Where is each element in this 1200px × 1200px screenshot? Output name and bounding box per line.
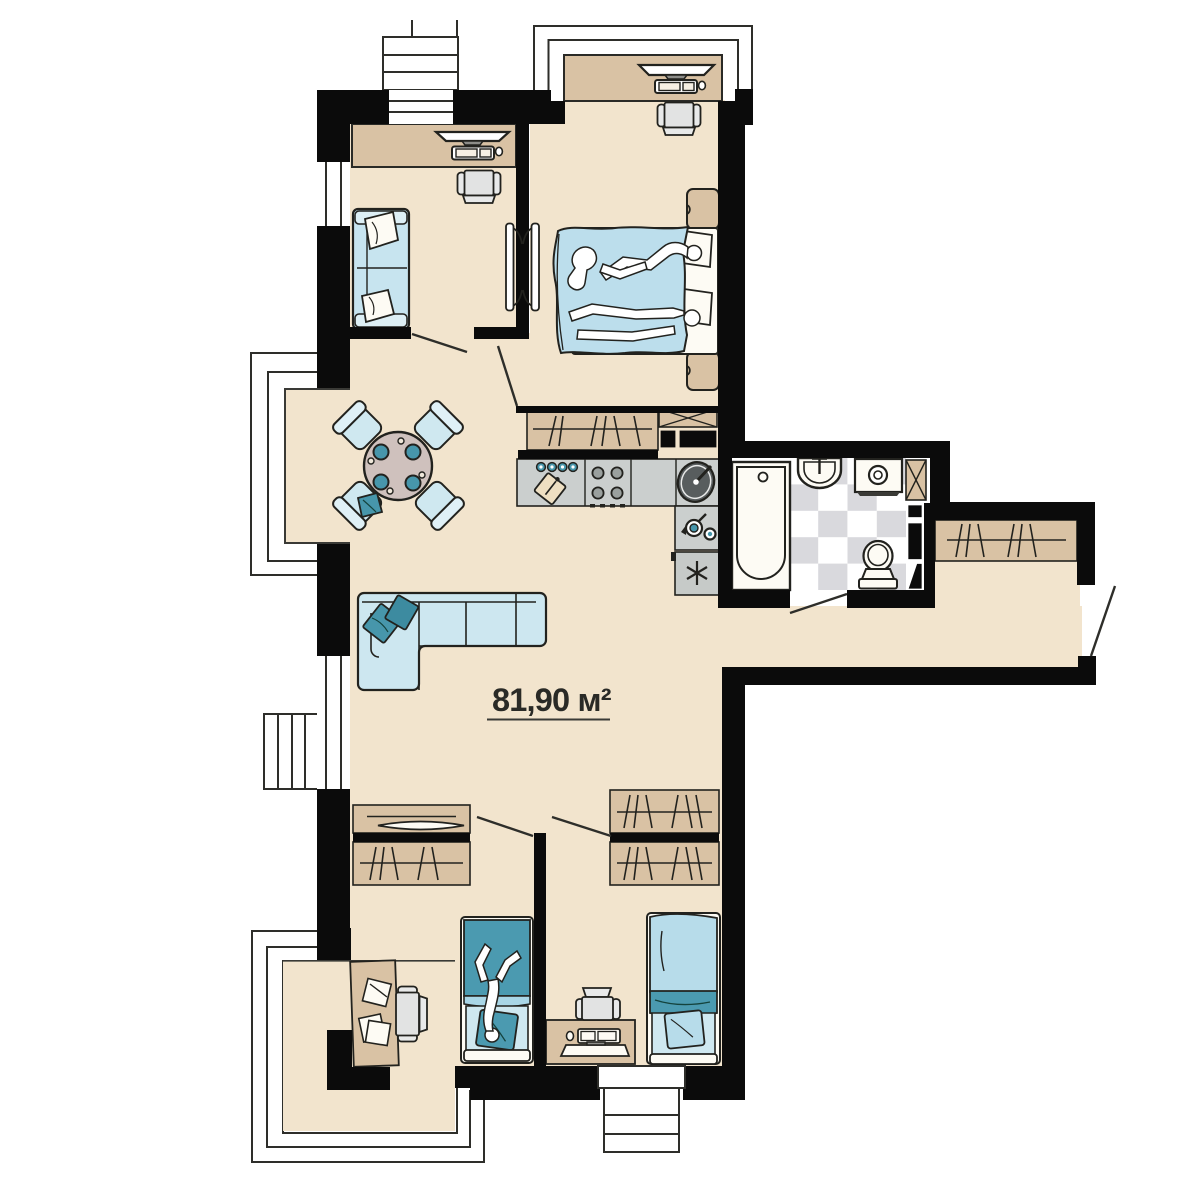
svg-text:81,90 м²: 81,90 м² — [492, 682, 612, 718]
